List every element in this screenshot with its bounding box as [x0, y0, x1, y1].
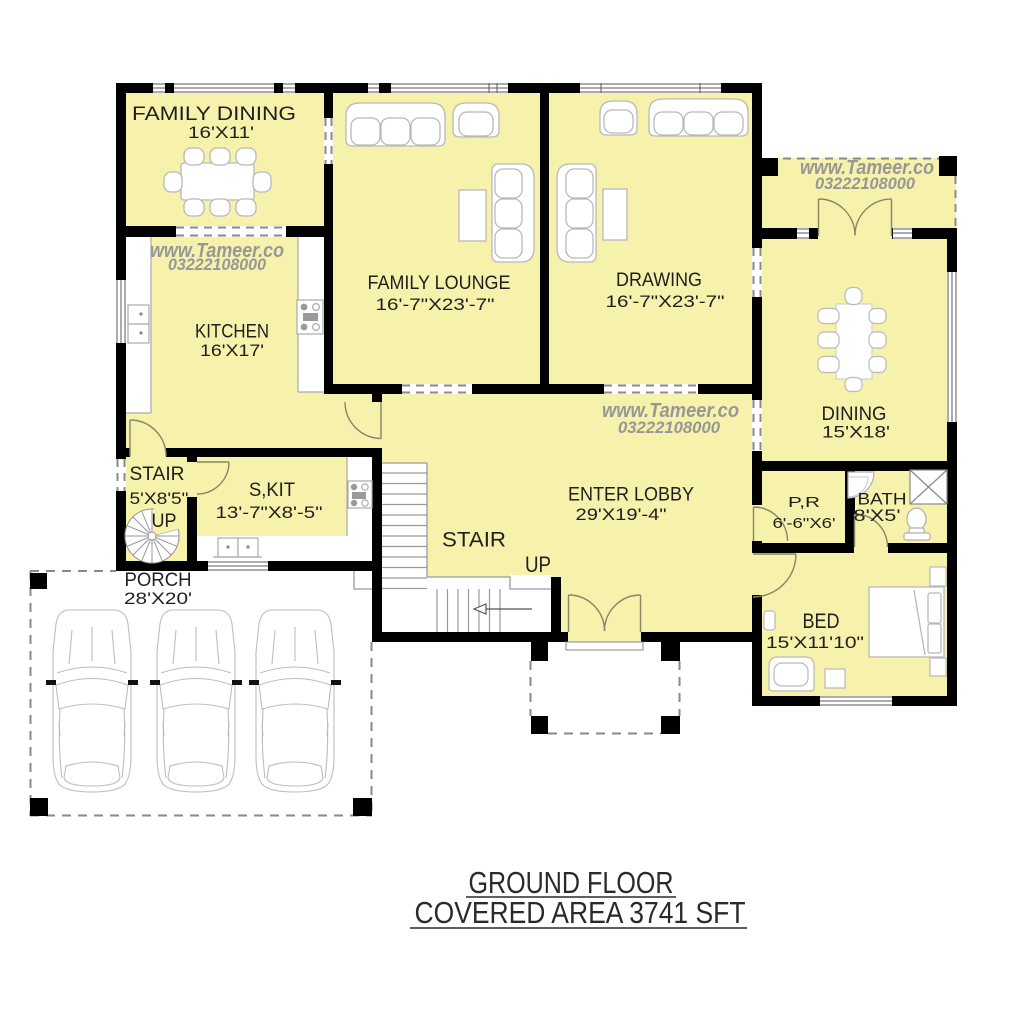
svg-text:16'-7"X23'-7": 16'-7"X23'-7" [376, 295, 495, 314]
svg-text:16'X11': 16'X11' [188, 123, 254, 142]
svg-text:15'X11'10": 15'X11'10" [766, 633, 864, 652]
svg-text:KITCHEN: KITCHEN [195, 322, 269, 343]
svg-text:STAIR: STAIR [130, 464, 185, 485]
svg-text:5'X8'5": 5'X8'5" [130, 489, 189, 508]
svg-text:UP: UP [525, 552, 551, 577]
svg-text:03222108000: 03222108000 [168, 255, 266, 274]
svg-text:STAIR: STAIR [442, 529, 506, 552]
svg-text:S,KIT: S,KIT [249, 480, 295, 501]
svg-text:FAMILY LOUNGE: FAMILY LOUNGE [368, 273, 511, 294]
svg-text:8'X5': 8'X5' [854, 506, 901, 525]
svg-text:BED: BED [803, 610, 840, 633]
svg-text:PORCH: PORCH [125, 570, 192, 591]
svg-text:DRAWING: DRAWING [616, 270, 702, 291]
svg-text:FAMILY DINING: FAMILY DINING [132, 104, 296, 125]
svg-text:13'-7"X8'-5": 13'-7"X8'-5" [216, 503, 323, 522]
svg-text:P,R: P,R [788, 494, 820, 511]
svg-text:03222108000: 03222108000 [618, 418, 721, 437]
svg-text:ENTER LOBBY: ENTER LOBBY [568, 485, 694, 506]
svg-text:16'X17': 16'X17' [200, 341, 264, 360]
svg-text:UP: UP [152, 511, 177, 532]
svg-text:COVERED AREA 3741 SFT: COVERED AREA 3741 SFT [415, 895, 746, 930]
svg-text:03222108000: 03222108000 [815, 174, 916, 193]
svg-text:28'X20': 28'X20' [124, 589, 192, 608]
svg-text:6'-6"X6': 6'-6"X6' [773, 515, 836, 532]
svg-text:29'X19'-4": 29'X19'-4" [576, 505, 667, 524]
svg-text:15'X18': 15'X18' [822, 423, 890, 442]
svg-text:16'-7"X23'-7": 16'-7"X23'-7" [606, 292, 725, 311]
